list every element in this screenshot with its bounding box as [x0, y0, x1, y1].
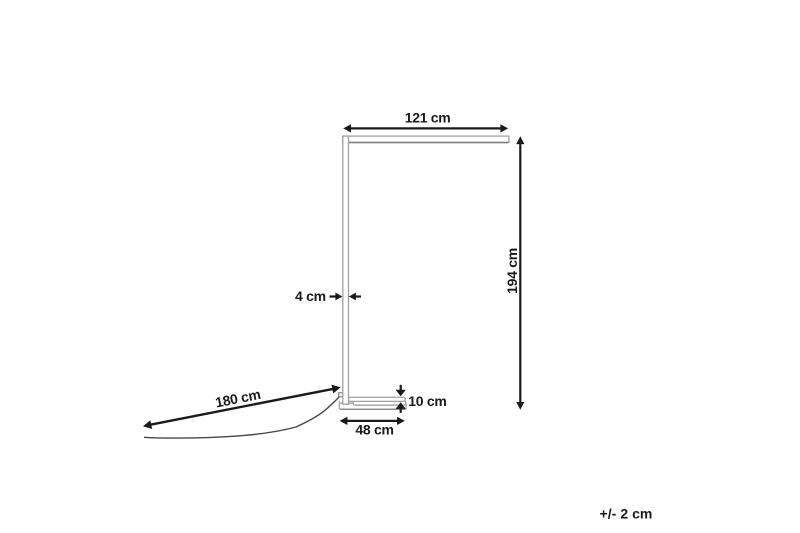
- svg-text:10 cm: 10 cm: [408, 393, 446, 409]
- svg-text:121 cm: 121 cm: [405, 110, 451, 126]
- svg-text:194 cm: 194 cm: [504, 248, 520, 294]
- svg-text:+/- 2 cm: +/- 2 cm: [600, 506, 653, 522]
- svg-text:48 cm: 48 cm: [355, 422, 393, 438]
- svg-text:4 cm: 4 cm: [295, 288, 326, 304]
